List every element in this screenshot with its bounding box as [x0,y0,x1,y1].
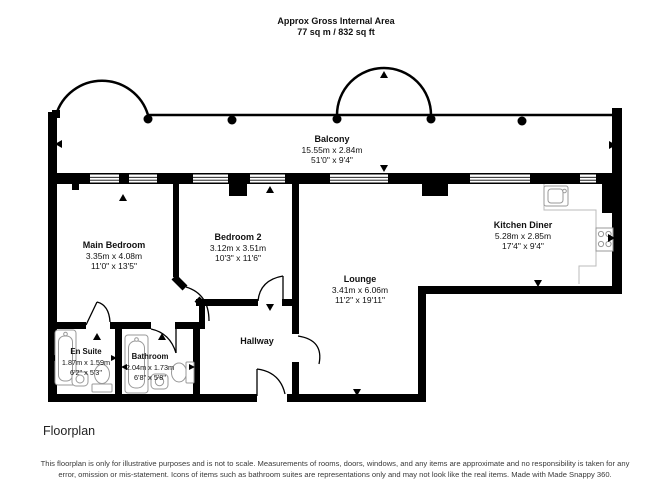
wall-bottom-left [48,394,257,402]
room-label-balcony: Balcony 15.55m x 2.84m 51'0" x 9'4" [302,134,363,166]
floorplan-page: Approx Gross Internal Area 77 sq m / 832… [0,0,670,499]
wall-nub-mainbed [72,184,79,190]
wall-nub-lounge [422,184,448,196]
floorplan-caption: Floorplan [43,424,95,438]
room-label-bathroom: Bathroom 2.04m x 1.73m 6'8" x 5'8" [126,352,174,384]
railing-post-dot [144,115,153,124]
wall-kitchen-corner [602,173,622,213]
railing-posts [52,110,527,126]
room-label-lounge: Lounge 3.41m x 6.06m 11'2" x 19'11" [332,274,388,306]
door-lounge [298,336,320,364]
door-bedroom2 [258,276,283,301]
marker-down [534,280,542,287]
marker-down [266,304,274,311]
title-line: Approx Gross Internal Area [277,16,394,27]
room-label-hallway: Hallway [240,336,274,347]
wall-hall-lounge-lower [292,362,299,402]
disclaimer-text: This floorplan is only for illustrative … [35,459,635,480]
wall-ensuite-top [53,322,86,329]
wall-bathroom-top [122,322,151,329]
door-entrance [257,369,285,396]
railing-post-dot [228,116,237,125]
marker-up [266,186,274,193]
room-label-bedroom2: Bedroom 2 3.12m x 3.51m 10'3" x 11'6" [210,232,266,264]
room-label-en-suite: En Suite 1.87m x 1.59m 6'2" x 5'3" [62,347,110,379]
room-label-main-bedroom: Main Bedroom 3.35m x 4.08m 11'0" x 13'5" [83,240,146,272]
page-title: Approx Gross Internal Area 77 sq m / 832… [277,16,394,38]
wall-bed2-bottom-stub [282,299,299,306]
marker-down [380,165,388,172]
wall-lounge-step [418,286,426,402]
marker-up [380,71,388,78]
marker-up [93,333,101,340]
wall-mainbed-bed2 [173,184,179,277]
door-bathroom [151,329,176,353]
title-subtitle: 77 sq m / 832 sq ft [277,27,394,38]
railing-post-dot [333,115,342,124]
railing-post-dot [518,117,527,126]
kitchen-sink-icon [544,186,568,206]
marker-up [158,333,166,340]
wall-diagonal-upper [174,277,185,288]
wall-kitchen-bottom [418,286,622,294]
railing-bay-curve-left [56,81,148,115]
walls-diagonal [174,277,203,305]
door-ensuite [86,302,110,325]
balcony-railing [56,68,612,115]
wall-bottom-right [287,394,426,402]
wall-ensuite-bathroom [115,322,122,402]
railing-post-dot [427,115,436,124]
marker-up [119,194,127,201]
room-label-kitchen-diner: Kitchen Diner 5.28m x 2.85m 17'4" x 9'4" [494,220,553,252]
wall-nub-bed2 [229,184,247,196]
balcony-door-mullion [119,173,129,184]
wall-bed2-lounge-upper [292,184,299,334]
wall-diagonal-lower [197,299,203,305]
